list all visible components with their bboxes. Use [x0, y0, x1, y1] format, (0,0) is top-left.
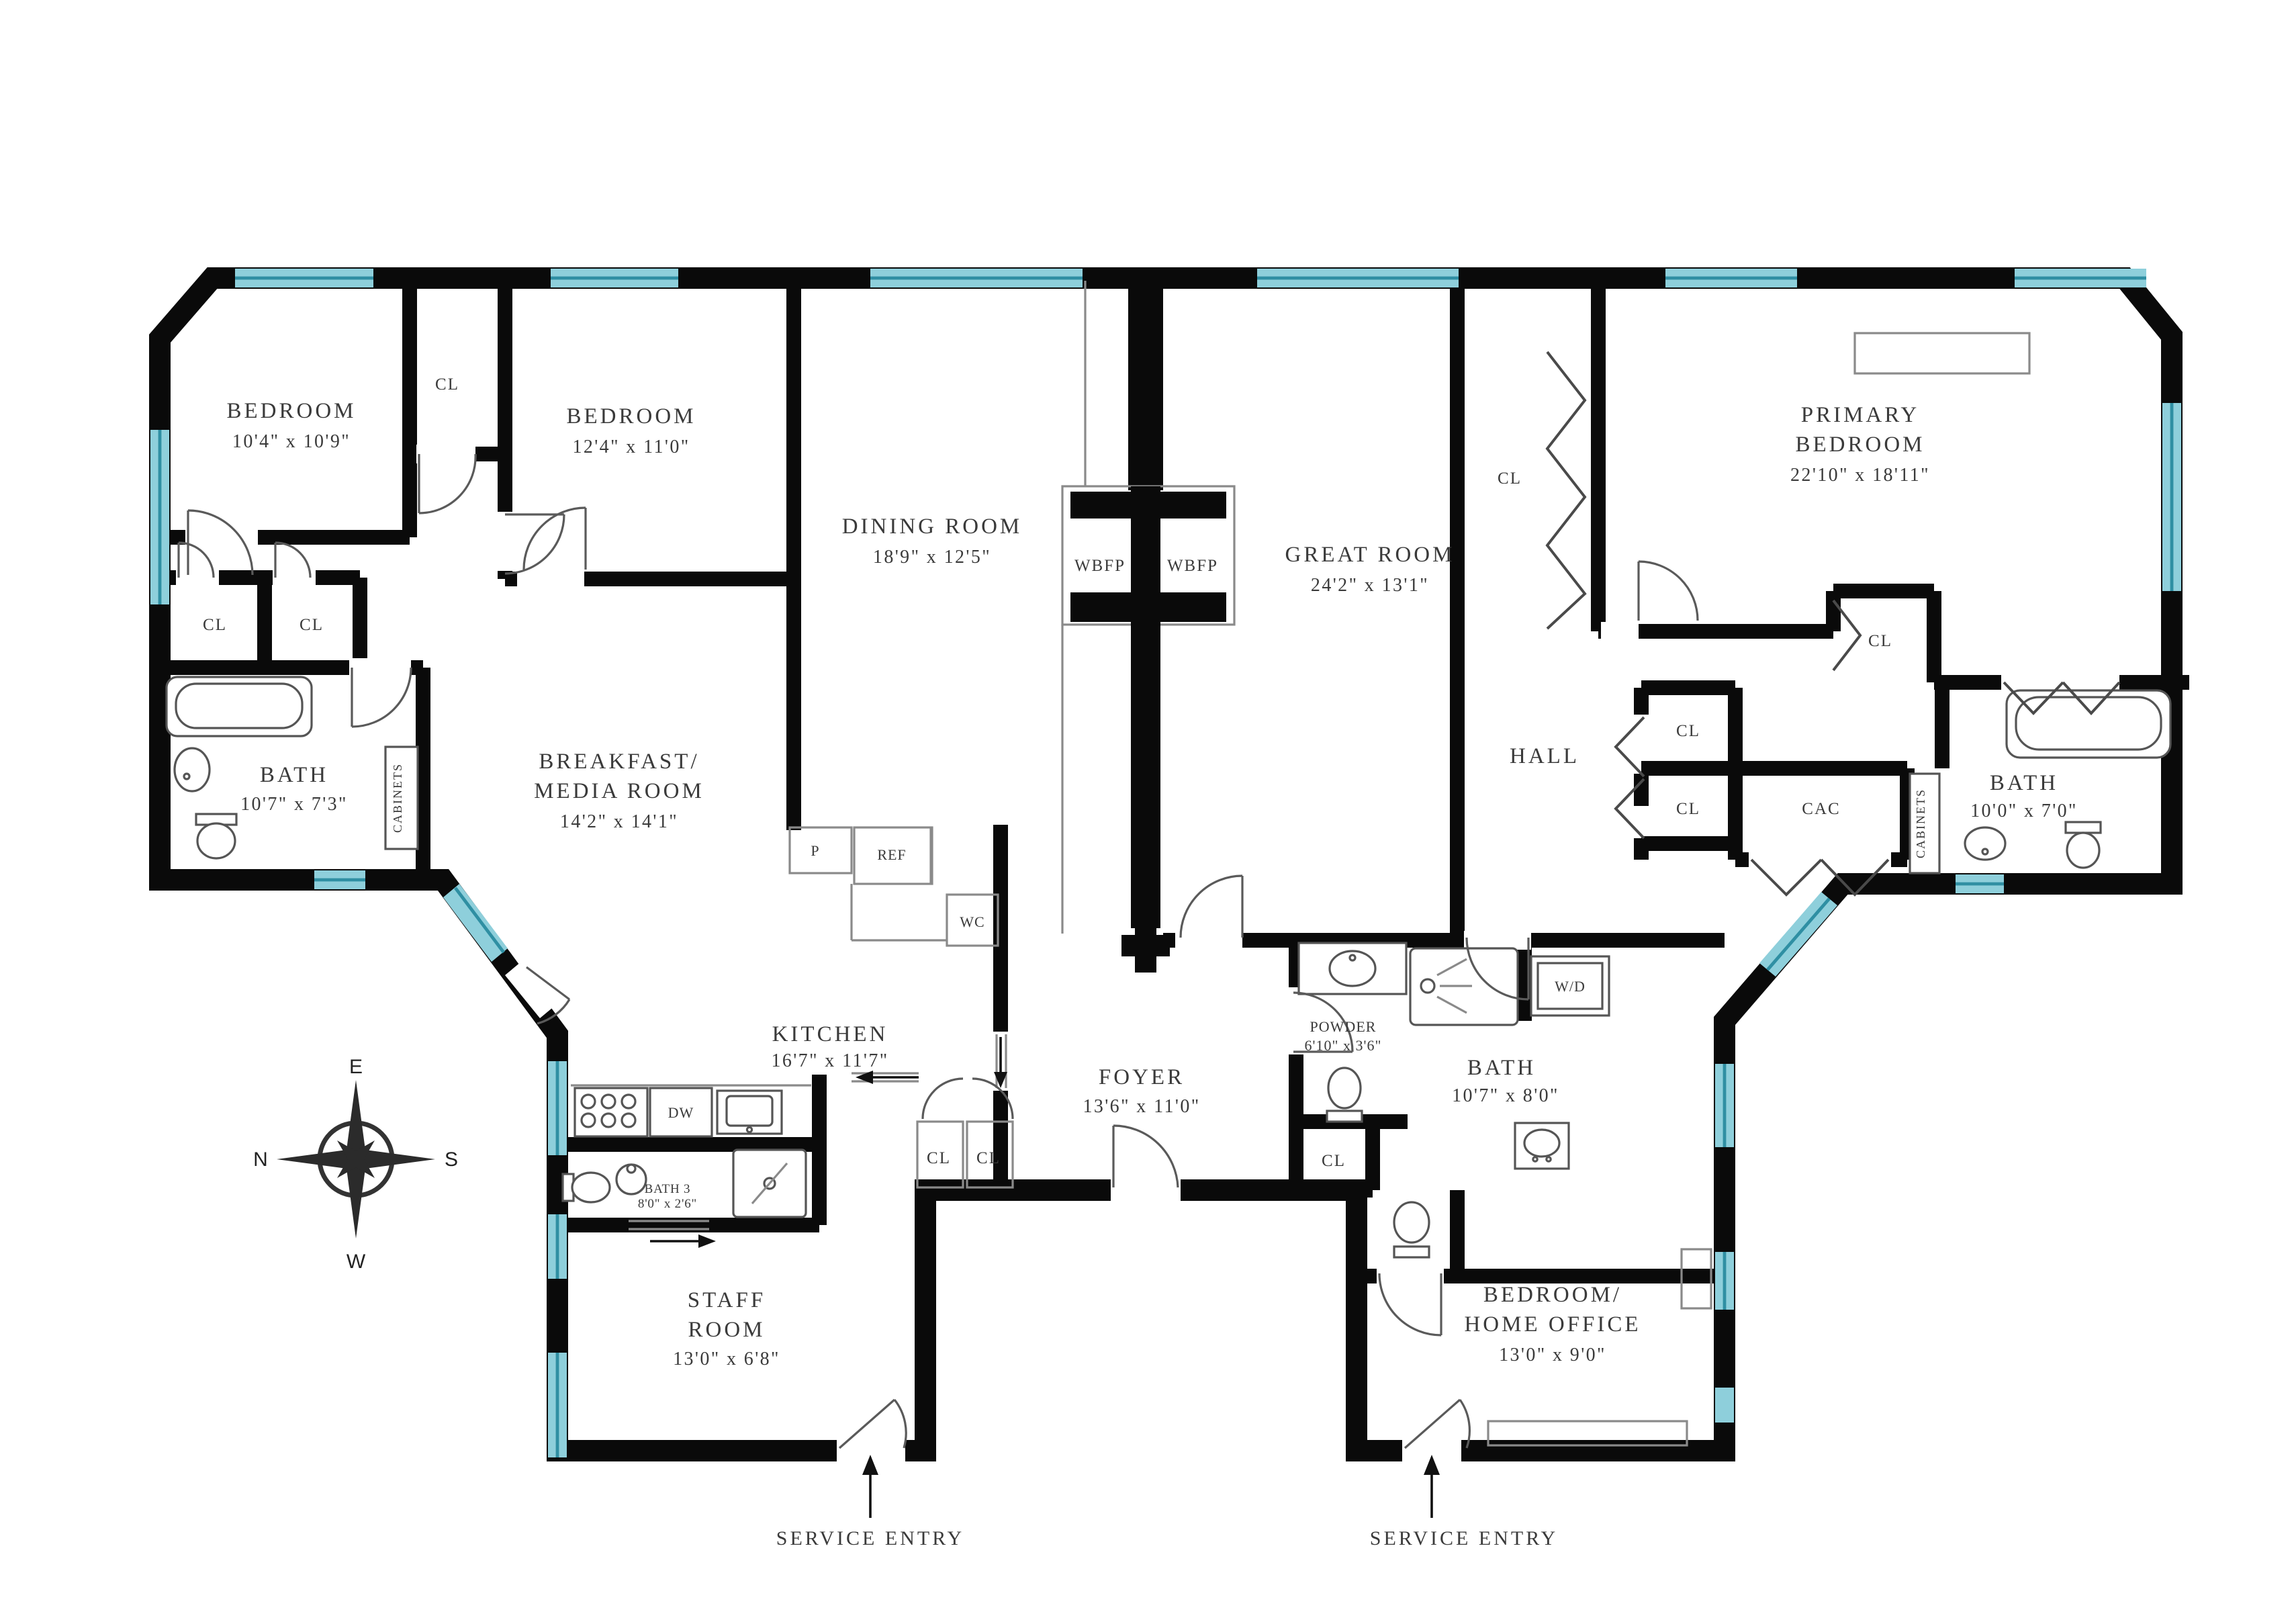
bathtub-icon: [167, 677, 312, 736]
room-dims: 14'2" x 14'1": [560, 811, 678, 832]
closet-label: CL: [300, 616, 324, 634]
cabinets-label: CABINETS: [1914, 788, 1927, 858]
sink-icon: [616, 1165, 646, 1194]
room-name: POWDER: [1310, 1018, 1377, 1035]
closet-label: CL: [1676, 722, 1700, 740]
sink-icon: [175, 748, 210, 791]
service-entry-label: SERVICE ENTRY: [1370, 1527, 1558, 1549]
shower-icon: [733, 1150, 806, 1217]
pantry-label: P: [811, 842, 819, 859]
room-name: PRIMARY: [1801, 403, 1920, 427]
room-dims: 13'6" x 11'0": [1083, 1096, 1200, 1117]
room-dims: 6'10" x 3'6": [1305, 1037, 1382, 1054]
room-name: BATH: [260, 763, 328, 787]
room-label-bedroom-office: BEDROOM/ HOME OFFICE 13'0" x 9'0": [1464, 1283, 1641, 1365]
compass-rose: E S W N: [253, 1056, 458, 1273]
closet-label: CL: [927, 1149, 951, 1167]
compass-east: E: [349, 1056, 363, 1078]
closet-label: CL: [435, 375, 459, 394]
room-label-cac: CAC: [1802, 800, 1840, 818]
fireplace-label: WBFP: [1167, 557, 1218, 575]
room-name: BEDROOM: [226, 399, 356, 423]
closet-label: CL: [1322, 1152, 1346, 1170]
room-name: BREAKFAST/: [539, 750, 699, 774]
refrigerator-label: REF: [877, 846, 906, 863]
room-label-powder: POWDER 6'10" x 3'6": [1305, 1018, 1382, 1054]
room-label-staff: STAFF ROOM 13'0" x 6'8": [673, 1288, 780, 1369]
window-diagonal: [443, 884, 508, 962]
room-dims: 13'0" x 9'0": [1499, 1345, 1606, 1365]
room-dims: 13'0" x 6'8": [673, 1349, 780, 1369]
compass-south: S: [445, 1148, 458, 1171]
service-entry-label: SERVICE ENTRY: [776, 1527, 964, 1549]
compass-north: N: [253, 1148, 268, 1171]
room-name: GREAT ROOM: [1285, 543, 1455, 567]
floor-plan-canvas: E S W N BEDROOM 10'4" x 10'9" BEDROOM 12…: [0, 0, 2294, 1624]
fireplace-label: WBFP: [1074, 557, 1126, 575]
room-label-bath-center: BATH 10'7" x 8'0": [1452, 1056, 1559, 1106]
cabinets-label: CABINETS: [391, 763, 404, 833]
closet-label: CL: [1498, 469, 1522, 488]
room-dims: 10'0" x 7'0": [1970, 801, 2078, 821]
room-label-bath-right: BATH 10'0" x 7'0": [1970, 771, 2078, 821]
room-name: BEDROOM: [566, 404, 696, 428]
shower-icon: [1410, 948, 1518, 1025]
room-name: FOYER: [1099, 1065, 1185, 1089]
room-label-dining: DINING ROOM 18'9" x 12'5": [842, 514, 1023, 568]
compass-west: W: [347, 1251, 366, 1273]
toilet-icon: [563, 1173, 610, 1202]
room-label-bath-left: BATH 10'7" x 7'3": [240, 763, 348, 815]
room-dims: 10'4" x 10'9": [232, 431, 351, 452]
toilet-icon: [196, 814, 236, 858]
room-dims: 12'4" x 11'0": [572, 437, 690, 457]
room-label-great: GREAT ROOM 24'2" x 13'1": [1285, 543, 1455, 596]
gallery-wall: [1131, 625, 1160, 928]
room-name: BATH: [1990, 771, 2058, 795]
room-label-bedroom2: BEDROOM 12'4" x 11'0": [566, 404, 696, 457]
dishwasher-label: DW: [668, 1104, 694, 1121]
room-name: HOME OFFICE: [1464, 1312, 1641, 1337]
room-name: ROOM: [688, 1318, 765, 1342]
room-label-bedroom1: BEDROOM 10'4" x 10'9": [226, 399, 356, 452]
fireplace-center-wall: [1131, 486, 1160, 625]
room-label-bath3: BATH 3 8'0" x 2'6": [638, 1182, 697, 1211]
room-name: BEDROOM: [1795, 433, 1925, 457]
room-name: KITCHEN: [772, 1022, 888, 1046]
room-label-foyer: FOYER 13'6" x 11'0": [1083, 1065, 1200, 1117]
room-name: STAFF: [688, 1288, 766, 1312]
washer-dryer-label: W/D: [1555, 978, 1586, 995]
sink-icon: [1299, 943, 1406, 994]
room-dims: 22'10" x 18'11": [1790, 465, 1930, 486]
floor-plan-page: E S W N BEDROOM 10'4" x 10'9" BEDROOM 12…: [0, 0, 2294, 1624]
window: [1715, 1388, 1734, 1423]
sink-icon: [1965, 827, 2005, 860]
room-label-primary: PRIMARY BEDROOM 22'10" x 18'11": [1790, 403, 1930, 486]
toilet-icon: [1394, 1202, 1429, 1257]
closet-label: CL: [203, 616, 227, 634]
room-name: BEDROOM/: [1483, 1283, 1622, 1307]
toilet-icon: [1327, 1068, 1362, 1122]
closet-label: CL: [976, 1149, 1001, 1167]
room-name: MEDIA ROOM: [534, 779, 704, 803]
fireplace-chase-wall: [1128, 267, 1163, 490]
room-dims: 18'9" x 12'5": [873, 547, 991, 568]
room-name: DINING ROOM: [842, 514, 1023, 539]
room-dims: 24'2" x 13'1": [1311, 575, 1429, 596]
room-label-breakfast: BREAKFAST/ MEDIA ROOM 14'2" x 14'1": [534, 750, 704, 832]
water-closet-label: WC: [960, 913, 984, 930]
room-name: BATH 3: [645, 1182, 691, 1196]
toilet-icon: [2066, 822, 2101, 868]
room-label-hall: HALL: [1510, 744, 1579, 768]
closet-label: CL: [1676, 800, 1700, 818]
room-dims: 10'7" x 8'0": [1452, 1085, 1559, 1106]
cross-column: [1121, 919, 1170, 973]
closet-label: CL: [1868, 632, 1892, 650]
room-dims: 10'7" x 7'3": [240, 794, 348, 815]
room-dims: 16'7" x 11'7": [771, 1050, 888, 1071]
bathtub-icon: [2007, 690, 2170, 758]
room-dims: 8'0" x 2'6": [638, 1197, 697, 1211]
sink-icon: [1515, 1123, 1569, 1169]
room-name: BATH: [1467, 1056, 1536, 1080]
room-label-kitchen: KITCHEN 16'7" x 11'7": [771, 1022, 888, 1071]
